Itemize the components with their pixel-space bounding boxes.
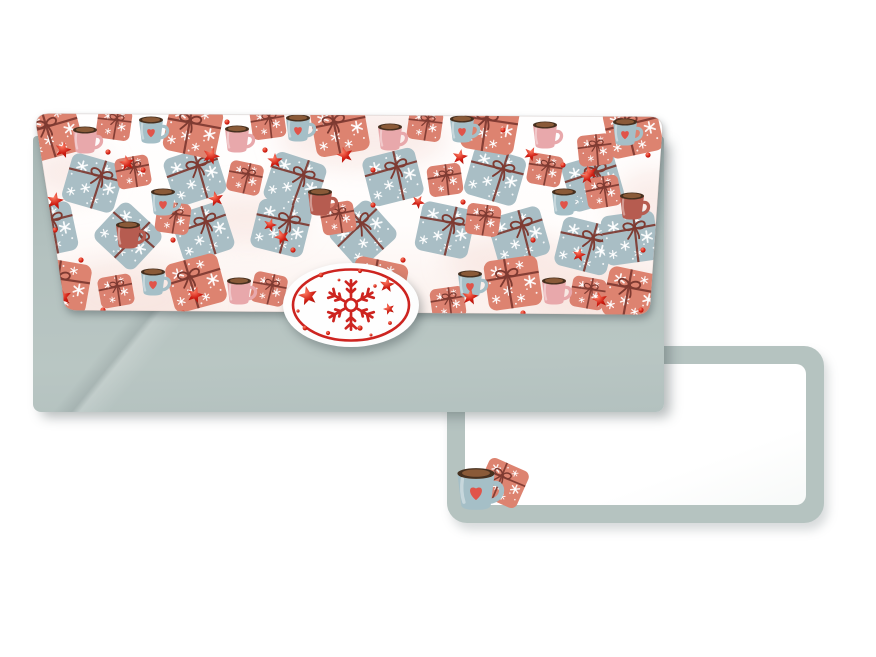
gift-box-small-icon	[576, 133, 613, 167]
seal-dot	[370, 334, 373, 337]
dot-icon	[640, 247, 645, 252]
gift-box-small-icon	[114, 154, 153, 190]
dot-icon	[262, 147, 267, 152]
dot-icon	[645, 152, 650, 157]
dot-icon	[370, 167, 375, 172]
seal-sticker	[266, 244, 436, 366]
gift-box-coral-icon	[483, 254, 543, 311]
product-photo-scene	[0, 0, 876, 657]
dot-icon	[100, 307, 105, 312]
gift-box-small-icon	[464, 202, 502, 237]
seal-dot	[338, 279, 341, 282]
dot-icon	[370, 202, 375, 207]
dot-icon	[530, 237, 535, 242]
card-corner-motif	[455, 453, 533, 515]
seal-dot	[303, 326, 308, 331]
gift-box-small-icon	[426, 162, 464, 197]
dot-icon	[170, 237, 175, 242]
dot-icon	[78, 257, 83, 262]
dot-icon	[140, 167, 145, 172]
seal-dot	[296, 309, 299, 312]
dot-icon	[500, 127, 505, 132]
gift-box-small-icon	[97, 273, 136, 309]
dot-icon	[520, 310, 525, 315]
dot-icon	[224, 119, 229, 124]
gift-box-small-icon	[249, 105, 287, 140]
gift-box-coral-icon	[309, 100, 371, 159]
dot-icon	[105, 149, 110, 154]
gift-box-small-icon	[569, 275, 608, 311]
dot-icon	[560, 162, 565, 167]
seal-dot	[373, 284, 376, 287]
seal-dot	[357, 325, 362, 330]
seal-dot	[358, 269, 362, 273]
dot-icon	[460, 199, 465, 204]
seal-dot	[388, 321, 392, 325]
seal-face	[283, 263, 419, 347]
seal-dot	[319, 273, 324, 278]
dot-icon	[638, 307, 643, 312]
gift-box-small-icon	[406, 107, 444, 142]
gift-box-coral-icon	[600, 265, 663, 325]
seal-dot	[326, 331, 330, 335]
